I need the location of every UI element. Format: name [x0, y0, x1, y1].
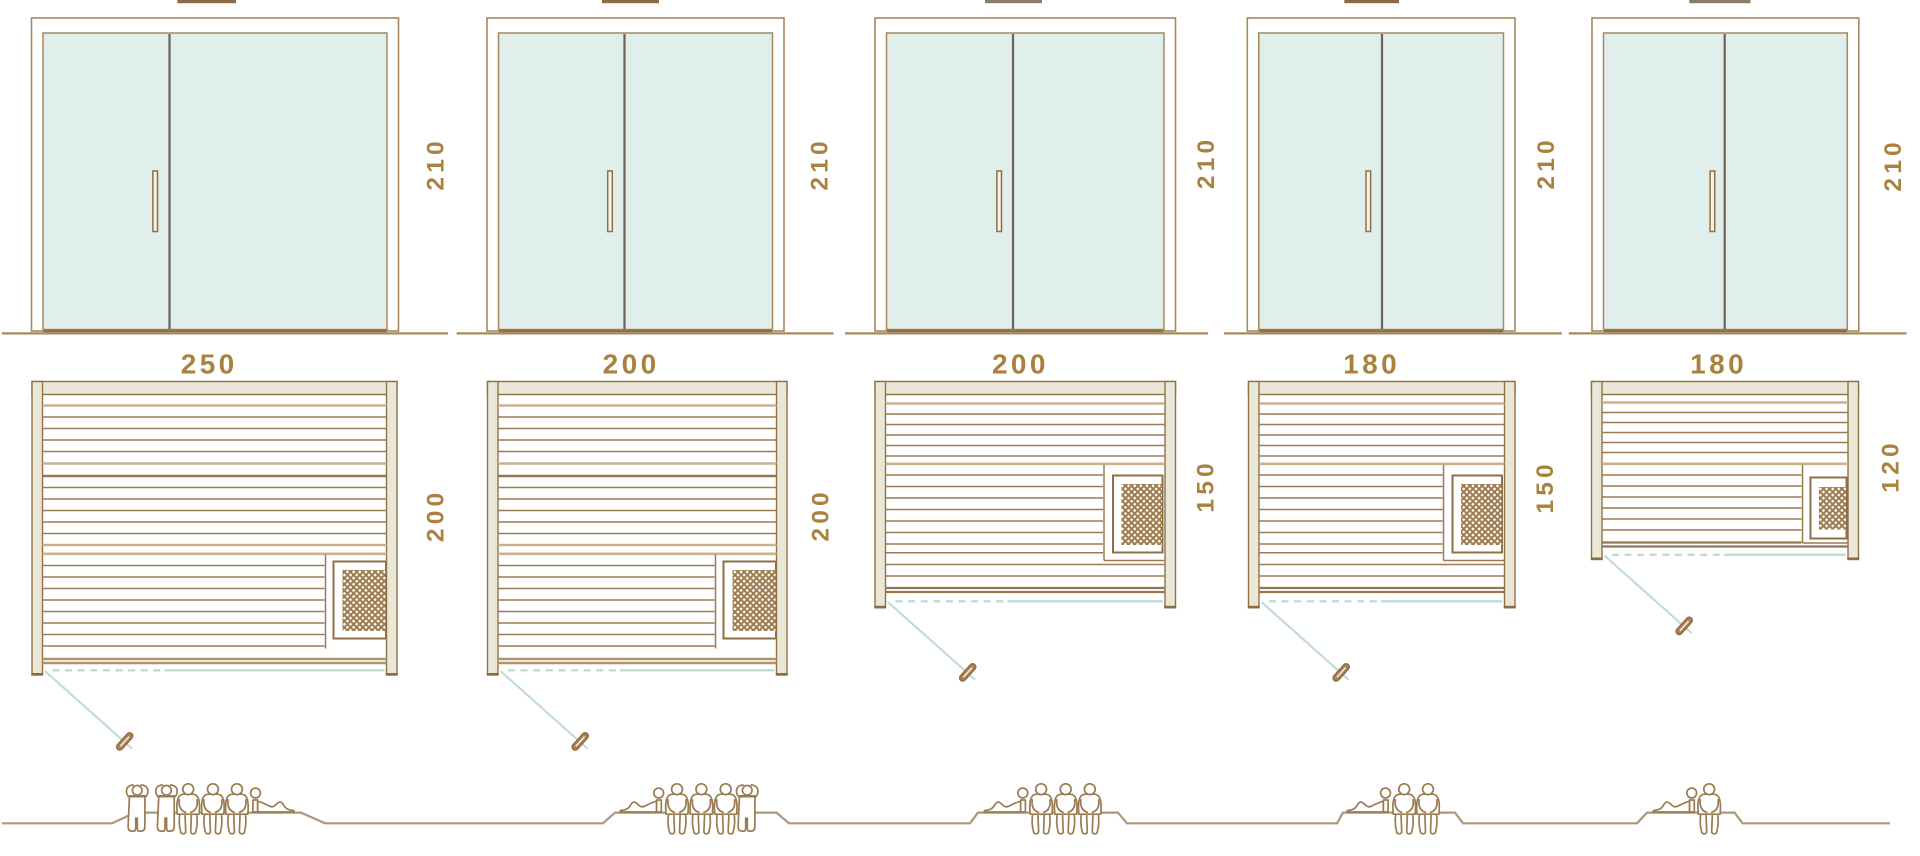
svg-text:120: 120 [1878, 439, 1905, 492]
svg-text:150: 150 [1193, 459, 1220, 512]
svg-text:210: 210 [807, 137, 834, 190]
svg-text:180: 180 [1690, 349, 1747, 380]
svg-text:200: 200 [603, 349, 660, 380]
svg-text:210: 210 [1533, 136, 1560, 189]
svg-text:200: 200 [808, 488, 835, 541]
svg-text:180: 180 [1343, 349, 1400, 380]
svg-text:200: 200 [992, 349, 1049, 380]
svg-text:250: 250 [181, 349, 238, 380]
svg-text:210: 210 [423, 137, 450, 190]
svg-text:150: 150 [1532, 460, 1559, 513]
svg-text:210: 210 [1193, 136, 1220, 189]
svg-text:210: 210 [1880, 138, 1907, 191]
svg-text:200: 200 [423, 489, 450, 542]
